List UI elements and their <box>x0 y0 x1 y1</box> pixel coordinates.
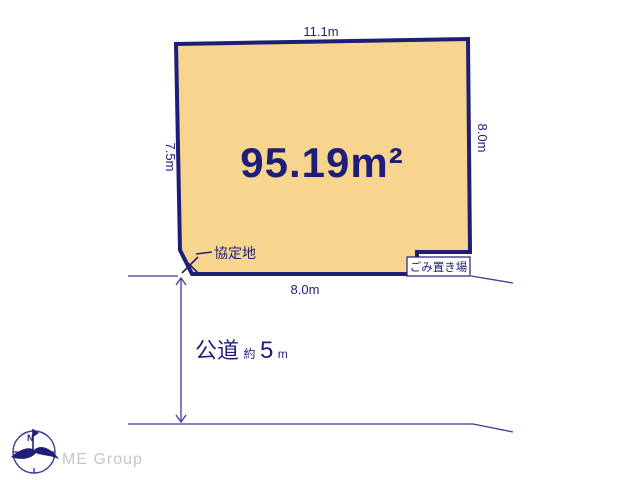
lot-plan-diagram: 協定地 ごみ置き場 11.1m 7.5m 8.0m 8.0m 95.19m² 公… <box>0 0 640 480</box>
compass-north-label: N <box>27 433 34 443</box>
road-approx-text: 約 <box>243 346 255 361</box>
road-label: 公道 約 5 m <box>195 337 288 364</box>
top-width-label: 11.1m <box>303 24 338 39</box>
road-name-text: 公道 <box>195 338 239 363</box>
lot-area-label: 95.19m² <box>240 139 403 186</box>
bird-silhouette-icon <box>11 447 59 459</box>
agreement-area-label: 協定地 <box>214 245 256 261</box>
road-unit-text: m <box>278 347 288 361</box>
lot-plan-page: 協定地 ごみ置き場 11.1m 7.5m 8.0m 8.0m 95.19m² 公… <box>0 0 640 480</box>
garbage-area-label: ごみ置き場 <box>410 260 468 274</box>
company-name-label: ME Group <box>62 451 143 468</box>
left-width-label: 7.5m <box>163 143 178 172</box>
road-upper-edge-right <box>471 276 513 283</box>
road-lower-edge <box>128 424 513 432</box>
right-width-label: 8.0m <box>475 124 490 153</box>
company-logo: N ME Group <box>11 429 143 473</box>
road-width-value: 5 <box>260 337 273 364</box>
bottom-width-label: 8.0m <box>291 282 320 297</box>
compass-needle-icon <box>33 429 39 450</box>
road-width-arrow <box>176 278 186 422</box>
